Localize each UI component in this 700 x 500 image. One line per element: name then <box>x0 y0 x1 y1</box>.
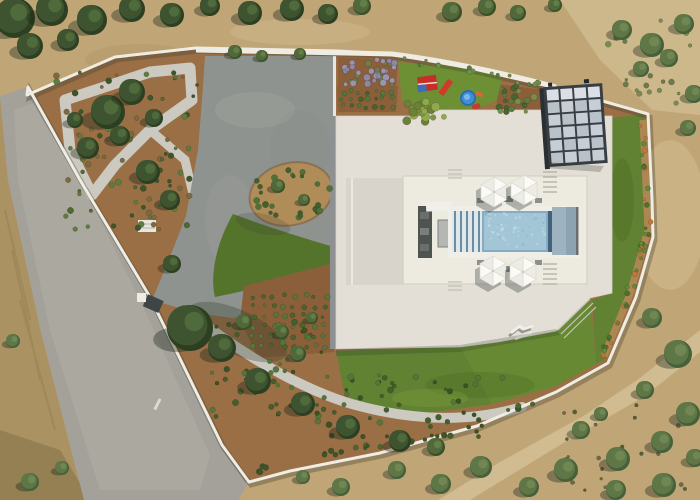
solar-panel-cell <box>592 149 605 160</box>
lawn-mottle <box>610 158 634 242</box>
kitchen-unit <box>420 212 429 219</box>
solar-panel-cell <box>576 112 589 123</box>
solar-panel-cell <box>590 124 603 135</box>
rooftop-unit <box>584 79 589 83</box>
solar-panel-cell <box>551 152 564 163</box>
kitchen-unit <box>420 228 429 235</box>
solar-panel-cell <box>550 140 563 151</box>
solar-panel-cell <box>591 137 604 148</box>
pool-infinity-edge <box>548 211 552 252</box>
solar-panel-cell <box>549 127 562 138</box>
solar-panel-cell <box>565 151 578 162</box>
solar-panel-cell <box>561 101 574 112</box>
courtyard-curb <box>333 56 336 118</box>
solar-panel-cell <box>588 86 601 97</box>
pool-catch-basin-shade <box>566 207 576 255</box>
solar-panel-cell <box>547 102 560 113</box>
solar-panel-cell <box>574 87 587 98</box>
red-playhouse <box>416 75 438 93</box>
paddling-pool-highlight <box>464 94 470 100</box>
kitchen-unit <box>420 244 429 251</box>
solar-panel-cell <box>577 138 590 149</box>
roof-inset-panel <box>346 178 403 285</box>
solar-panel-cell <box>589 112 602 123</box>
pool-basin-rim <box>576 207 579 255</box>
pool-lounger <box>535 198 542 203</box>
solar-panel-cell <box>577 125 590 136</box>
solar-panel-cell <box>563 126 576 137</box>
playhouse-gable <box>417 84 427 92</box>
solar-panel-cell <box>578 150 591 161</box>
solar-panel-cell <box>589 99 602 110</box>
solar-panel-cell <box>546 89 559 100</box>
solar-panel-cell <box>562 113 575 124</box>
gate-pillar <box>137 293 146 302</box>
solar-panel-cell <box>575 100 588 111</box>
aerial-photo-stage <box>0 0 700 500</box>
lawn-mottle-light <box>392 389 468 407</box>
solar-panel-cell <box>564 139 577 150</box>
rooftop-unit <box>548 83 552 87</box>
solar-panel-array <box>539 78 608 169</box>
solar-panel-cell <box>560 88 573 99</box>
roof-inset-line <box>351 178 353 285</box>
aerial-villa-photo <box>0 0 700 500</box>
solar-panel-cell <box>548 114 561 125</box>
